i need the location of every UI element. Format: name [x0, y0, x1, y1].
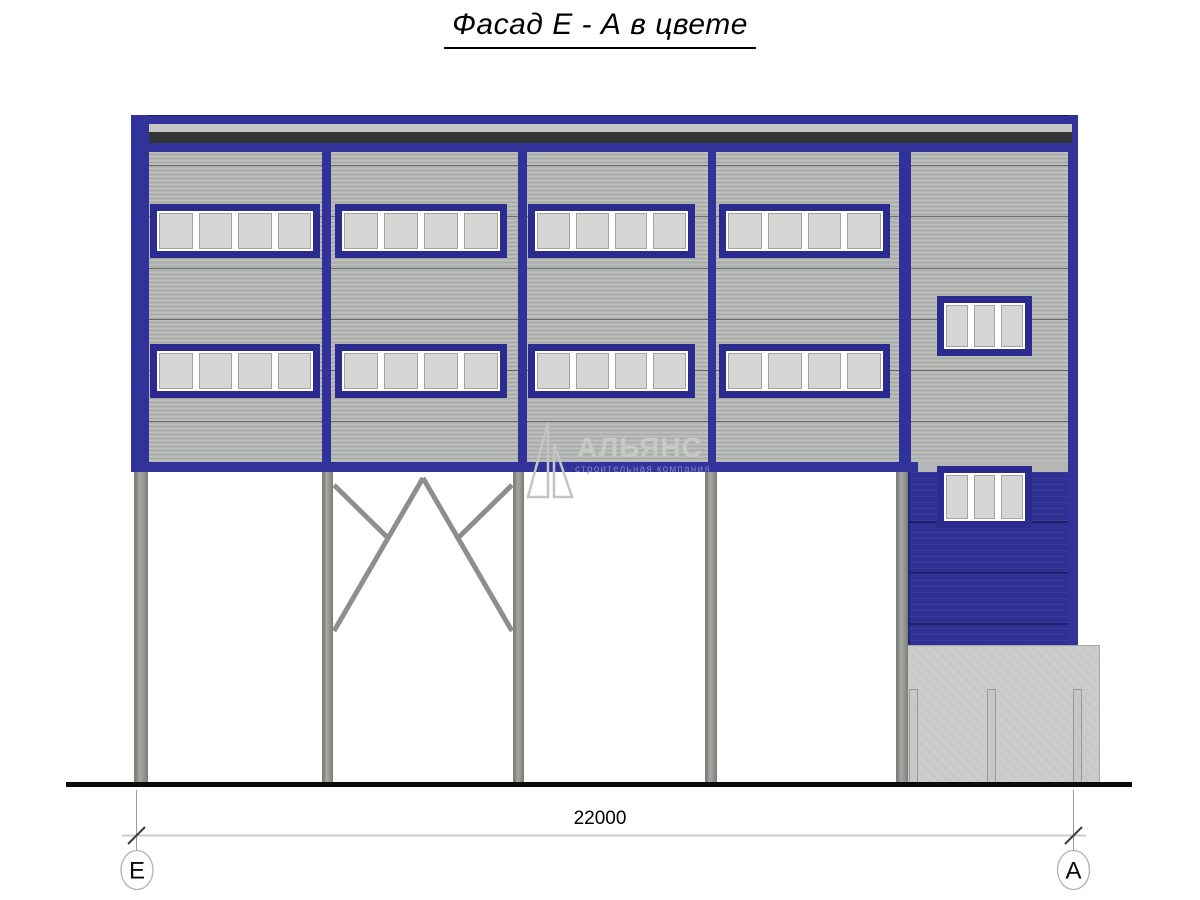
- window-pane: [728, 213, 762, 249]
- window-band: [150, 204, 320, 258]
- bottom-edge-band: [131, 462, 918, 472]
- window-pane: [344, 213, 378, 249]
- window-pane: [424, 213, 458, 249]
- foundation-block: [908, 645, 1100, 782]
- window-pane: [464, 353, 498, 389]
- window-pane: [728, 353, 762, 389]
- window-pane: [615, 353, 648, 389]
- window-pane: [238, 353, 272, 389]
- window-band: [719, 344, 890, 398]
- window-pane: [424, 353, 458, 389]
- window-pane: [768, 353, 802, 389]
- window-band: [150, 344, 320, 398]
- bay-divider: [899, 152, 911, 462]
- window-pane: [974, 305, 996, 347]
- window-pane: [576, 213, 609, 249]
- window-pane: [238, 213, 272, 249]
- formwork-joint: [987, 689, 996, 783]
- window-pane: [159, 213, 193, 249]
- window-pane: [847, 213, 881, 249]
- window-band: [719, 204, 890, 258]
- window-pane: [974, 475, 996, 519]
- dimension-strip: 22000 Е А: [0, 786, 1200, 900]
- steel-column: [896, 472, 908, 782]
- page-title: Фасад Е - А в цвете: [0, 8, 1200, 49]
- bay-divider: [518, 152, 527, 462]
- wall-seam-line: [149, 319, 1068, 320]
- window-band: [335, 204, 507, 258]
- window-pane: [199, 213, 233, 249]
- left-edge-trim: [131, 115, 149, 472]
- window-pane: [615, 213, 648, 249]
- wall-cladding: [149, 152, 1068, 472]
- roof-fascia-dark-strip: [149, 132, 1072, 143]
- window-pane: [653, 353, 686, 389]
- window-pane: [946, 305, 968, 347]
- window-pane: [768, 213, 802, 249]
- window-pane: [537, 353, 570, 389]
- bay-divider: [708, 152, 716, 462]
- bay-divider: [322, 152, 331, 462]
- window-band: [528, 344, 695, 398]
- formwork-joint: [1073, 689, 1082, 783]
- window-pane: [1001, 305, 1023, 347]
- wall-seam-line: [149, 268, 1068, 269]
- window-pane: [808, 353, 842, 389]
- window-pane: [464, 213, 498, 249]
- formwork-joint: [909, 689, 918, 783]
- window-pane: [946, 475, 968, 519]
- window-pane: [576, 353, 609, 389]
- drawing-title: Фасад Е - А в цвете: [444, 8, 756, 49]
- window-pane: [847, 353, 881, 389]
- dimension-value: 22000: [574, 808, 627, 829]
- window-band: [937, 296, 1032, 356]
- grid-axis-label-left: Е: [129, 858, 145, 885]
- steel-column: [134, 472, 148, 782]
- roof-fascia-light-strip: [149, 124, 1072, 132]
- window-band: [335, 344, 507, 398]
- window-pane: [159, 353, 193, 389]
- window-band: [937, 466, 1032, 528]
- steel-column: [705, 472, 717, 782]
- facade-drawing-sheet: Фасад Е - А в цвете АЛ: [0, 0, 1200, 900]
- wall-seam-line: [149, 165, 1068, 166]
- window-pane: [537, 213, 570, 249]
- window-pane: [278, 353, 312, 389]
- window-pane: [1001, 475, 1023, 519]
- window-pane: [653, 213, 686, 249]
- window-band: [528, 204, 695, 258]
- window-pane: [278, 213, 312, 249]
- window-pane: [808, 213, 842, 249]
- window-pane: [384, 213, 418, 249]
- cross-bracing: [325, 470, 525, 640]
- grid-axis-label-right: А: [1065, 858, 1081, 885]
- right-edge-trim: [1068, 115, 1078, 645]
- window-pane: [344, 353, 378, 389]
- window-pane: [384, 353, 418, 389]
- window-pane: [199, 353, 233, 389]
- wall-seam-line: [149, 421, 1068, 422]
